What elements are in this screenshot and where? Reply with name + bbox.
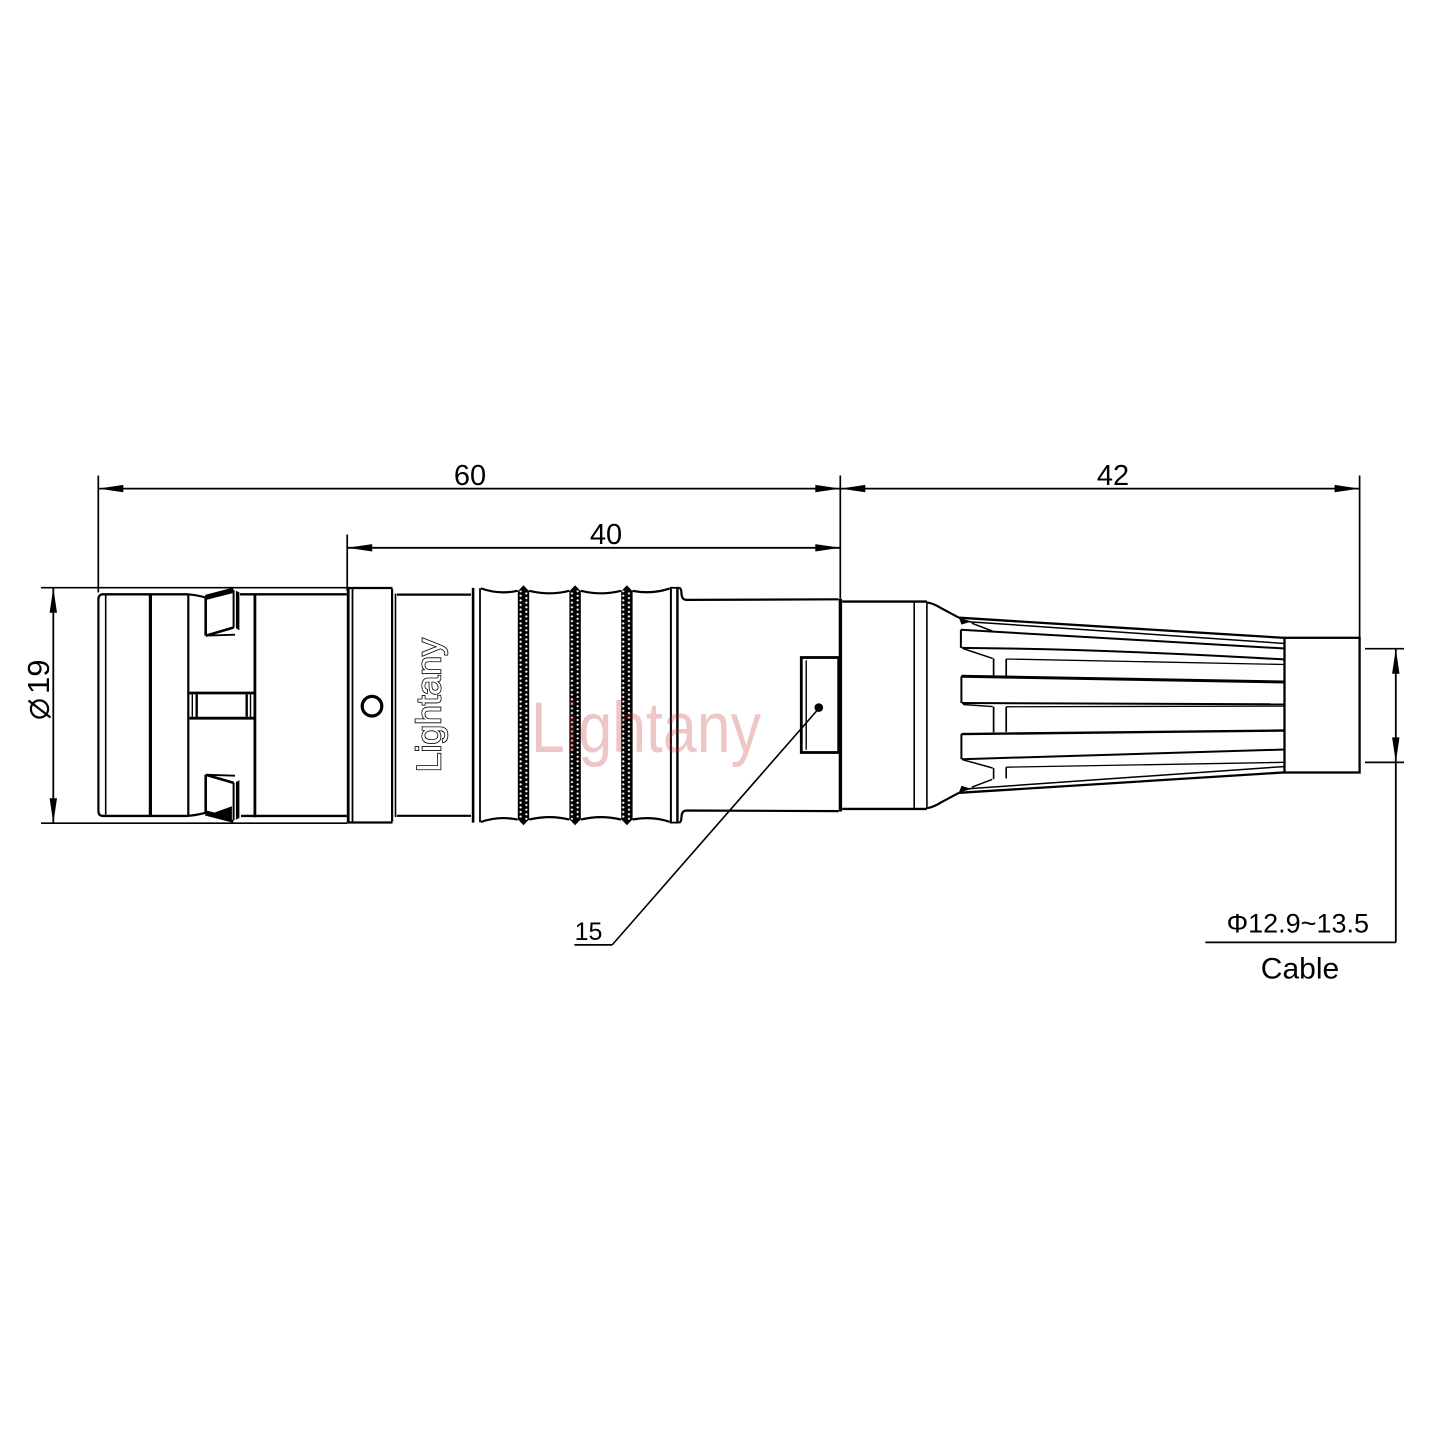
svg-text:60: 60 xyxy=(454,460,486,492)
svg-text:Lightany: Lightany xyxy=(410,638,448,772)
svg-text:Φ12.9~13.5: Φ12.9~13.5 xyxy=(1227,908,1369,938)
svg-text:42: 42 xyxy=(1097,460,1129,492)
svg-text:Lightany: Lightany xyxy=(531,689,761,768)
svg-text:Cable: Cable xyxy=(1261,953,1339,986)
svg-text:19: 19 xyxy=(21,660,56,694)
svg-text:15: 15 xyxy=(575,918,603,946)
svg-text:40: 40 xyxy=(590,519,622,551)
